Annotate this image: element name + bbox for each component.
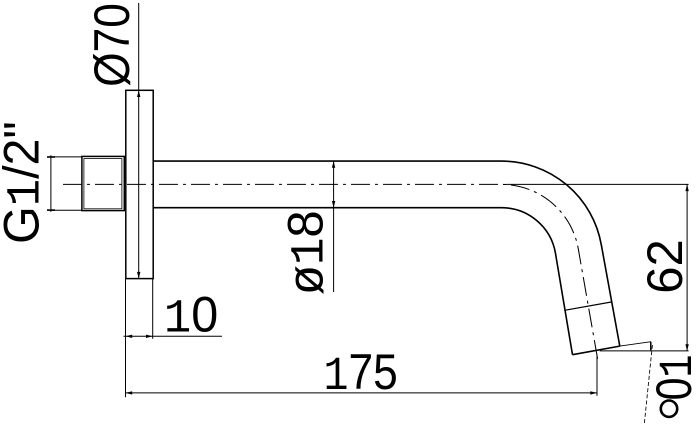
svg-text:Ø70: Ø70 [84, 3, 140, 87]
svg-text:ø18: ø18 [278, 210, 337, 295]
svg-text:01: 01 [646, 354, 696, 400]
svg-text:62: 62 [637, 239, 693, 294]
svg-text:10: 10 [164, 287, 218, 346]
svg-text:175: 175 [323, 345, 397, 404]
svg-text:G1/2": G1/2" [0, 121, 53, 243]
